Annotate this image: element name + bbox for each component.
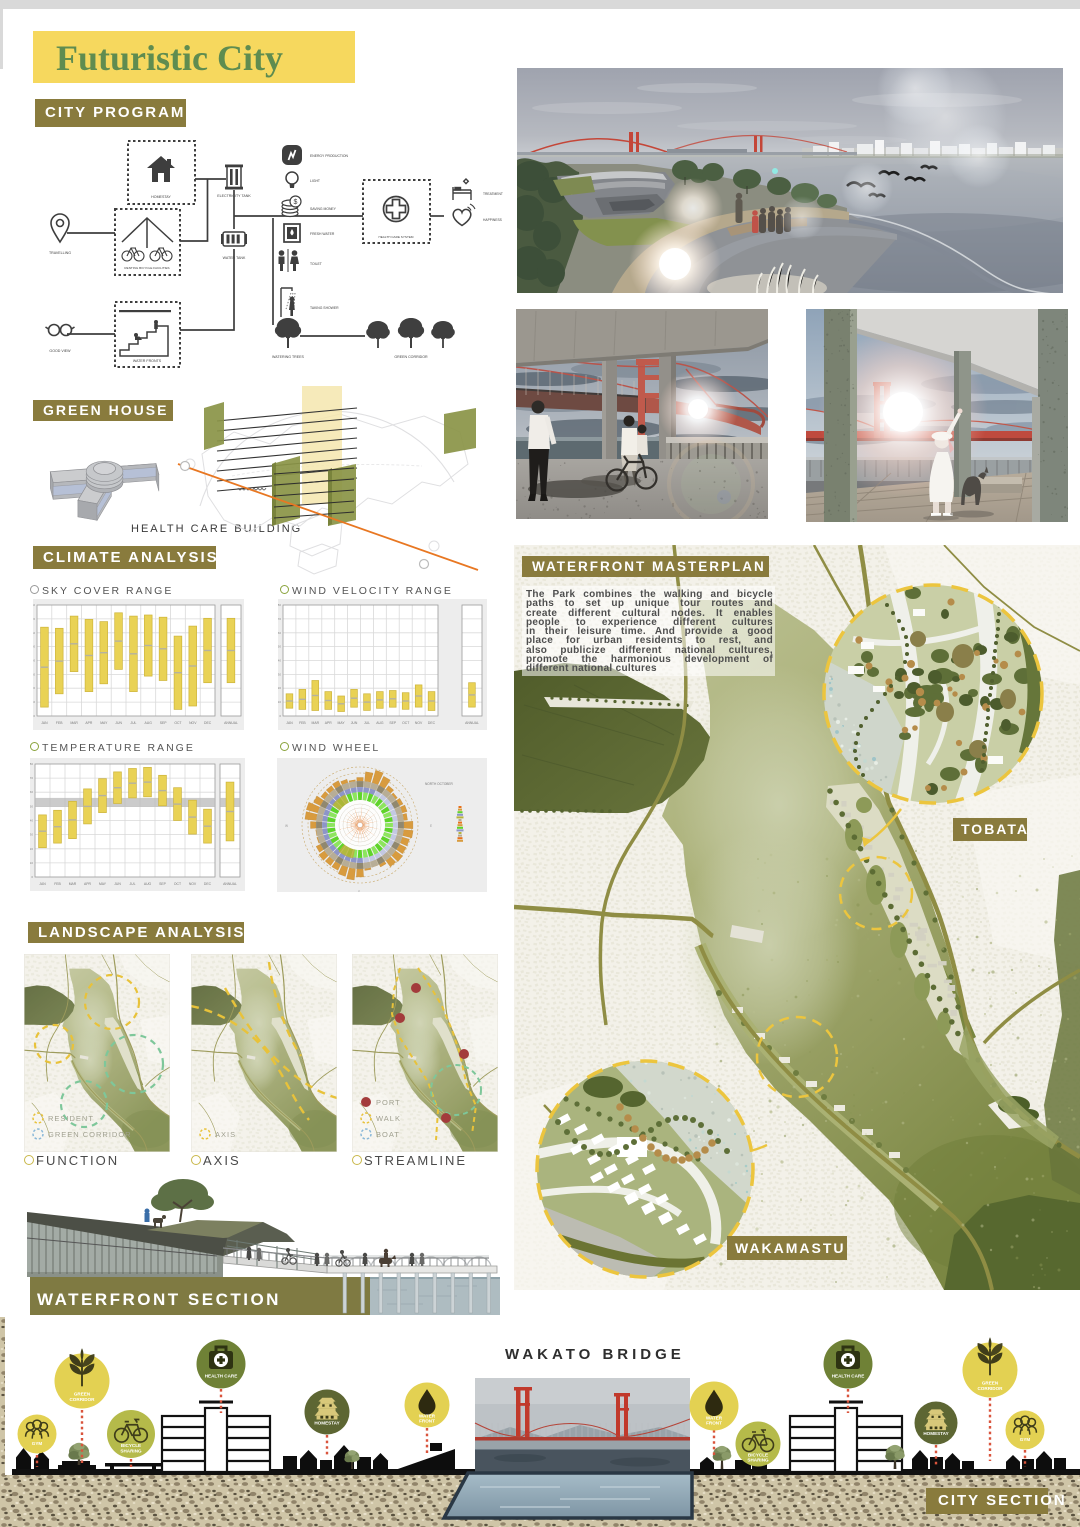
svg-text:WATER FRONTS: WATER FRONTS	[133, 359, 162, 363]
svg-text:CORRIDOR: CORRIDOR	[977, 1386, 1003, 1391]
svg-text:NOV: NOV	[189, 721, 197, 725]
svg-text:AUG: AUG	[144, 882, 152, 886]
svg-text:HEALTH CARE: HEALTH CARE	[832, 1373, 865, 1378]
svg-text:TOILET: TOILET	[310, 262, 322, 266]
svg-text:JAN: JAN	[41, 721, 48, 725]
svg-text:10: 10	[278, 700, 281, 704]
svg-text:MAR: MAR	[69, 882, 77, 886]
svg-text:GOOD VIEW: GOOD VIEW	[49, 349, 71, 353]
svg-text:MAR: MAR	[312, 721, 320, 725]
svg-text:PORT: PORT	[376, 1098, 401, 1107]
svg-text:FEB: FEB	[56, 721, 63, 725]
svg-text:80: 80	[33, 603, 35, 607]
svg-text:JUL: JUL	[364, 721, 370, 725]
svg-text:60: 60	[33, 631, 35, 635]
svg-text:JUL: JUL	[129, 882, 135, 886]
svg-text:GYM: GYM	[1020, 1437, 1031, 1442]
svg-text:WATERFRONT SECTION: WATERFRONT SECTION	[37, 1290, 281, 1309]
svg-text:MAY: MAY	[338, 721, 346, 725]
svg-text:APR: APR	[84, 882, 92, 886]
svg-text:JUL: JUL	[130, 721, 136, 725]
svg-text:APR: APR	[325, 721, 333, 725]
svg-text:OCT: OCT	[402, 721, 409, 725]
svg-text:LIGHT: LIGHT	[310, 179, 320, 183]
svg-text:HAPPINESS: HAPPINESS	[483, 218, 503, 222]
svg-text:10: 10	[30, 861, 33, 865]
svg-text:30: 30	[30, 833, 33, 837]
svg-text:ENERGY PRODUCTION: ENERGY PRODUCTION	[310, 154, 349, 158]
svg-text:70: 70	[30, 776, 33, 780]
svg-text:ANNUAL: ANNUAL	[224, 721, 238, 725]
svg-text:NOV: NOV	[415, 721, 423, 725]
svg-text:70: 70	[33, 617, 35, 621]
svg-text:E: E	[430, 824, 432, 828]
svg-text:40: 40	[30, 819, 33, 823]
svg-text:NOV: NOV	[189, 882, 197, 886]
svg-text:GREEN CORRIDOR: GREEN CORRIDOR	[394, 355, 428, 359]
svg-text:FEB: FEB	[54, 882, 61, 886]
svg-text:FRONT: FRONT	[419, 1419, 435, 1424]
svg-text:80: 80	[30, 762, 33, 766]
svg-text:JAN: JAN	[39, 882, 46, 886]
svg-text:RESIDENT: RESIDENT	[48, 1114, 94, 1123]
svg-text:40: 40	[278, 659, 281, 663]
svg-text:30: 30	[278, 672, 281, 676]
svg-text:HOMESTAY: HOMESTAY	[151, 195, 171, 199]
svg-text:DEC: DEC	[204, 882, 212, 886]
svg-text:10: 10	[33, 700, 35, 704]
svg-text:SEP: SEP	[160, 721, 168, 725]
svg-text:HOMESTAY: HOMESTAY	[314, 1420, 339, 1425]
svg-text:FEB: FEB	[299, 721, 306, 725]
svg-text:JAN: JAN	[286, 721, 293, 725]
svg-text:80: 80	[278, 603, 281, 607]
svg-text:SAVING MONEY: SAVING MONEY	[310, 207, 337, 211]
svg-text:ELECTRICITY TANK: ELECTRICITY TANK	[217, 194, 251, 198]
svg-text:SEP: SEP	[159, 882, 167, 886]
svg-text:FRONT: FRONT	[706, 1420, 722, 1425]
svg-text:GYM: GYM	[32, 1441, 43, 1446]
svg-text:GREEN CORRIDOR: GREEN CORRIDOR	[48, 1130, 132, 1139]
svg-text:JUN: JUN	[114, 882, 121, 886]
svg-text:WATERING TREES: WATERING TREES	[272, 355, 304, 359]
svg-text:40: 40	[33, 659, 35, 663]
svg-text:20: 20	[33, 686, 35, 690]
svg-text:MAY: MAY	[99, 882, 107, 886]
svg-text:MAR: MAR	[70, 721, 78, 725]
svg-text:70: 70	[278, 617, 281, 621]
svg-text:SEP: SEP	[389, 721, 397, 725]
svg-text:ANNUAL: ANNUAL	[465, 721, 479, 725]
svg-text:BOAT: BOAT	[376, 1130, 400, 1139]
svg-text:TREATMENT: TREATMENT	[483, 192, 503, 196]
svg-text:APR: APR	[85, 721, 93, 725]
svg-text:30: 30	[33, 672, 35, 676]
svg-text:AXIS: AXIS	[215, 1130, 236, 1139]
svg-text:WATER TANK: WATER TANK	[223, 256, 246, 260]
svg-text:SHARING: SHARING	[120, 1448, 142, 1453]
svg-text:S: S	[358, 890, 360, 892]
svg-text:WALK: WALK	[376, 1114, 401, 1123]
svg-text:MAY: MAY	[100, 721, 108, 725]
svg-text:20: 20	[278, 686, 281, 690]
svg-text:AUG: AUG	[145, 721, 153, 725]
svg-text:TRAVELLING: TRAVELLING	[49, 251, 71, 255]
svg-text:60: 60	[278, 631, 281, 635]
svg-text:CORRIDOR: CORRIDOR	[69, 1397, 95, 1402]
svg-text:ANNUAL: ANNUAL	[223, 882, 237, 886]
svg-text:OCT: OCT	[174, 882, 181, 886]
svg-text:FRESH WATER: FRESH WATER	[310, 232, 335, 236]
svg-text:HEALTH CARE SYSTEM: HEALTH CARE SYSTEM	[378, 235, 413, 239]
svg-text:20: 20	[30, 847, 33, 851]
svg-text:TAKING SHOWER: TAKING SHOWER	[310, 306, 339, 310]
svg-text:$: $	[294, 199, 298, 206]
svg-text:OCT: OCT	[174, 721, 181, 725]
svg-text:50: 50	[33, 645, 35, 649]
svg-text:JUN: JUN	[115, 721, 122, 725]
svg-text:HEALTH CARE: HEALTH CARE	[205, 1373, 238, 1378]
svg-text:JUN: JUN	[351, 721, 358, 725]
svg-text:AUG: AUG	[376, 721, 384, 725]
svg-text:NORTH OCTOBER: NORTH OCTOBER	[425, 782, 454, 786]
svg-text:50: 50	[30, 804, 33, 808]
svg-text:50: 50	[278, 645, 281, 649]
svg-text:W: W	[285, 824, 288, 828]
svg-text:SHARING: SHARING	[747, 1458, 769, 1463]
svg-text:60: 60	[30, 790, 33, 794]
svg-text:HOMESTAY: HOMESTAY	[923, 1431, 948, 1436]
svg-text:DEC: DEC	[428, 721, 436, 725]
svg-text:DEC: DEC	[204, 721, 212, 725]
svg-text:RENTING BICYCLE FACILITIES: RENTING BICYCLE FACILITIES	[124, 266, 169, 270]
